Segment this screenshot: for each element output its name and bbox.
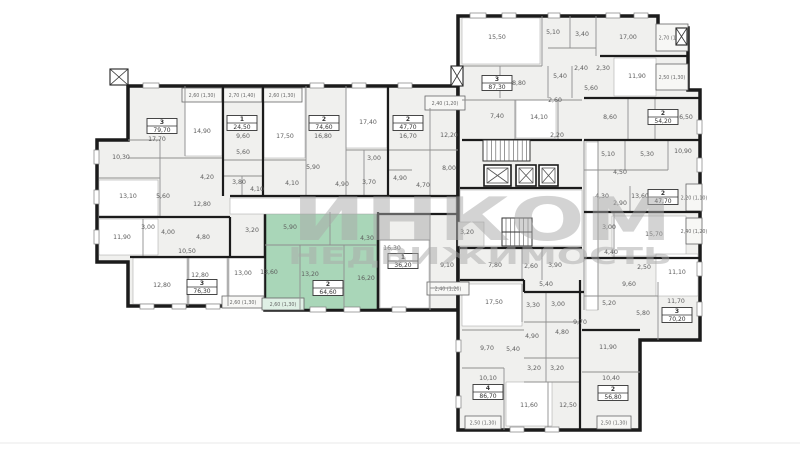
- room-dimension-label: 4,80: [555, 329, 569, 336]
- window: [456, 396, 461, 408]
- room-dimension-label: 5,10: [546, 29, 560, 36]
- balcony-label: 2,40 (1,20): [432, 101, 459, 107]
- window: [510, 427, 524, 432]
- window: [94, 190, 99, 204]
- window: [456, 340, 461, 352]
- room: [346, 88, 387, 148]
- apartment-rooms-count: 2: [611, 386, 615, 393]
- room-dimension-label: 17,50: [276, 133, 294, 140]
- room-dimension-label: 5,60: [584, 85, 598, 92]
- room-dimension-label: 12,50: [559, 402, 577, 409]
- window: [548, 13, 560, 18]
- balcony-label: 2,60 (1,30): [189, 93, 216, 99]
- apartment-area: 86,70: [479, 393, 496, 400]
- window: [143, 83, 159, 88]
- room-dimension-label: 11,70: [667, 298, 685, 305]
- window: [697, 262, 702, 276]
- room-dimension-label: 10,30: [112, 154, 130, 161]
- window: [140, 304, 154, 309]
- apartment-rooms-count: 3: [495, 76, 499, 83]
- room-dimension-label: 17,40: [359, 119, 377, 126]
- room-dimension-label: 17,70: [148, 136, 166, 143]
- apartment-rooms-count: 1: [240, 116, 244, 123]
- balcony-label: 2,20 (1,10): [681, 195, 708, 201]
- room-dimension-label: 11,90: [628, 73, 646, 80]
- window: [502, 13, 516, 18]
- window: [352, 83, 366, 88]
- apartment-area: 87,30: [488, 84, 505, 91]
- balcony-label: 2,50 (1,30): [470, 420, 497, 426]
- apartment-tag: 370,20: [662, 308, 692, 324]
- room-dimension-label: 16,70: [399, 133, 417, 140]
- room-dimension-label: 13,60: [260, 269, 278, 276]
- room-dimension-label: 10,10: [479, 375, 497, 382]
- room: [462, 18, 540, 64]
- balcony-label: 2,60 (1,30): [230, 300, 257, 306]
- room-dimension-label: 3,80: [232, 179, 246, 186]
- room-dimension-label: 4,50: [613, 169, 627, 176]
- room-dimension-label: 12,80: [191, 272, 209, 279]
- room-dimension-label: 4,20: [200, 174, 214, 181]
- room: [133, 258, 187, 304]
- room-dimension-label: 3,30: [526, 302, 540, 309]
- apartment-tag: 379,70: [147, 119, 177, 135]
- apartment-area: 64,60: [319, 289, 336, 296]
- floor-plan: 2,60 (1,30)2,70 (1,40)2,60 (1,30)2,40 (1…: [0, 0, 800, 450]
- room-dimension-label: 14,10: [530, 114, 548, 121]
- room-dimension-label: 7,40: [490, 113, 504, 120]
- room-dimension-label: 11,60: [520, 402, 538, 409]
- apartment-tag: 256,80: [598, 386, 628, 402]
- room-dimension-label: 17,50: [485, 299, 503, 306]
- room-dimension-label: 2,60: [548, 97, 562, 104]
- room-dimension-label: 3,00: [551, 301, 565, 308]
- watermark-line2: НЕДВИЖИМОСТЬ: [288, 244, 672, 270]
- apartment-rooms-count: 2: [322, 116, 326, 123]
- balcony-label: 2,60 (1,30): [270, 302, 297, 308]
- room-dimension-label: 8,60: [603, 114, 617, 121]
- apartment-rooms-count: 3: [675, 308, 679, 315]
- room-dimension-label: 9,70: [573, 319, 587, 326]
- apartment-rooms-count: 2: [406, 116, 410, 123]
- apartment-area: 74,60: [315, 124, 332, 131]
- window: [310, 307, 326, 312]
- apartment-area: 79,70: [153, 127, 170, 134]
- room-dimension-label: 9,70: [480, 345, 494, 352]
- room-dimension-label: 13,10: [119, 193, 137, 200]
- room-dimension-label: 10,90: [674, 148, 692, 155]
- apartment-area: 47,70: [399, 124, 416, 131]
- room-dimension-label: 11,90: [113, 234, 131, 241]
- balcony-label: 2,50 (1,30): [659, 75, 686, 81]
- apartment-tag: 376,30: [187, 280, 217, 296]
- room-dimension-label: 15,50: [488, 34, 506, 41]
- apartment-rooms-count: 3: [160, 119, 164, 126]
- room-dimension-label: 9,60: [236, 133, 250, 140]
- apartment-area: 24,50: [233, 124, 250, 131]
- staircase: [483, 140, 530, 161]
- room-dimension-label: 5,20: [602, 300, 616, 307]
- apartment-tag: 124,50: [227, 116, 257, 132]
- room-dimension-label: 5,80: [636, 310, 650, 317]
- room-dimension-label: 10,40: [602, 375, 620, 382]
- room-dimension-label: 3,20: [550, 365, 564, 372]
- room-dimension-label: 2,30: [596, 65, 610, 72]
- balcony-label: 2,60 (1,30): [269, 93, 296, 99]
- room-dimension-label: 12,80: [193, 201, 211, 208]
- apartment-rooms-count: 2: [661, 110, 665, 117]
- balcony-label: 2,50 (1,30): [601, 420, 628, 426]
- apartment-rooms-count: 4: [486, 385, 490, 392]
- window: [697, 120, 702, 134]
- window: [606, 13, 620, 18]
- room-dimension-label: 12,20: [440, 132, 458, 139]
- room-dimension-label: 8,00: [442, 165, 456, 172]
- window: [94, 150, 99, 164]
- room-dimension-label: 4,80: [196, 234, 210, 241]
- watermark: ИНКОМ НЕДВИЖИМОСТЬ: [288, 185, 672, 270]
- window: [697, 158, 702, 172]
- apartment-rooms-count: 3: [200, 280, 204, 287]
- room-dimension-label: 4,00: [161, 229, 175, 236]
- room-dimension-label: 3,00: [141, 224, 155, 231]
- apartment-area: 54,20: [654, 118, 671, 125]
- room-dimension-label: 14,90: [193, 128, 211, 135]
- room-dimension-label: 5,40: [539, 281, 553, 288]
- room-dimension-label: 5,30: [640, 151, 654, 158]
- window: [344, 307, 360, 312]
- room-dimension-label: 10,50: [178, 248, 196, 255]
- balcony-label: 2,40 (1,20): [681, 229, 708, 235]
- room-dimension-label: 2,20: [550, 132, 564, 139]
- apartment-tag: 274,60: [309, 116, 339, 132]
- room-dimension-label: 16,20: [357, 275, 375, 282]
- room-dimension-label: 4,90: [525, 333, 539, 340]
- room-dimension-label: 12,80: [153, 282, 171, 289]
- apartment-tag: 247,70: [393, 116, 423, 132]
- window: [545, 427, 559, 432]
- window: [697, 302, 702, 316]
- apartment-tag[interactable]: 264,60: [313, 281, 343, 297]
- balcony-label: 2,70 (1,40): [229, 93, 256, 99]
- window: [206, 304, 220, 309]
- room-dimension-label: 9,60: [622, 281, 636, 288]
- room-dimension-label: 3,40: [575, 31, 589, 38]
- window: [470, 13, 486, 18]
- window: [172, 304, 186, 309]
- room-dimension-label: 13,20: [301, 271, 319, 278]
- apartment-rooms-count: 2: [326, 281, 330, 288]
- room-dimension-label: 3,00: [367, 155, 381, 162]
- window: [398, 83, 412, 88]
- apartment-area: 56,80: [604, 394, 621, 401]
- room-dimension-label: 11,90: [599, 344, 617, 351]
- room-dimension-label: 5,10: [601, 151, 615, 158]
- window: [310, 83, 324, 88]
- apartment-tag: 486,70: [473, 385, 503, 401]
- room-dimension-label: 5,40: [506, 346, 520, 353]
- window: [94, 230, 99, 244]
- room-dimension-label: 2,40: [574, 65, 588, 72]
- window: [392, 307, 406, 312]
- room-dimension-label: 3,20: [527, 365, 541, 372]
- room-dimension-label: 5,90: [306, 164, 320, 171]
- room-dimension-label: 17,00: [619, 34, 637, 41]
- room-dimension-label: 16,80: [314, 133, 332, 140]
- apartment-tag: 387,30: [482, 76, 512, 92]
- window: [634, 13, 648, 18]
- apartment-area: 70,20: [668, 316, 685, 323]
- room-dimension-label: 5,40: [553, 73, 567, 80]
- room-dimension-label: 3,20: [245, 227, 259, 234]
- balcony-label: 2,40 (1,20): [435, 286, 462, 292]
- room-dimension-label: 5,60: [156, 193, 170, 200]
- room-dimension-label: 4,90: [393, 175, 407, 182]
- room-dimension-label: 13,00: [234, 270, 252, 277]
- room-dimension-label: 11,10: [668, 269, 686, 276]
- room-dimension-label: 4,10: [250, 186, 264, 193]
- floorplan-page: 2,60 (1,30)2,70 (1,40)2,60 (1,30)2,40 (1…: [0, 0, 800, 450]
- apartment-area: 76,30: [193, 288, 210, 295]
- apartment-tag: 254,20: [648, 110, 678, 126]
- room-dimension-label: 5,60: [236, 149, 250, 156]
